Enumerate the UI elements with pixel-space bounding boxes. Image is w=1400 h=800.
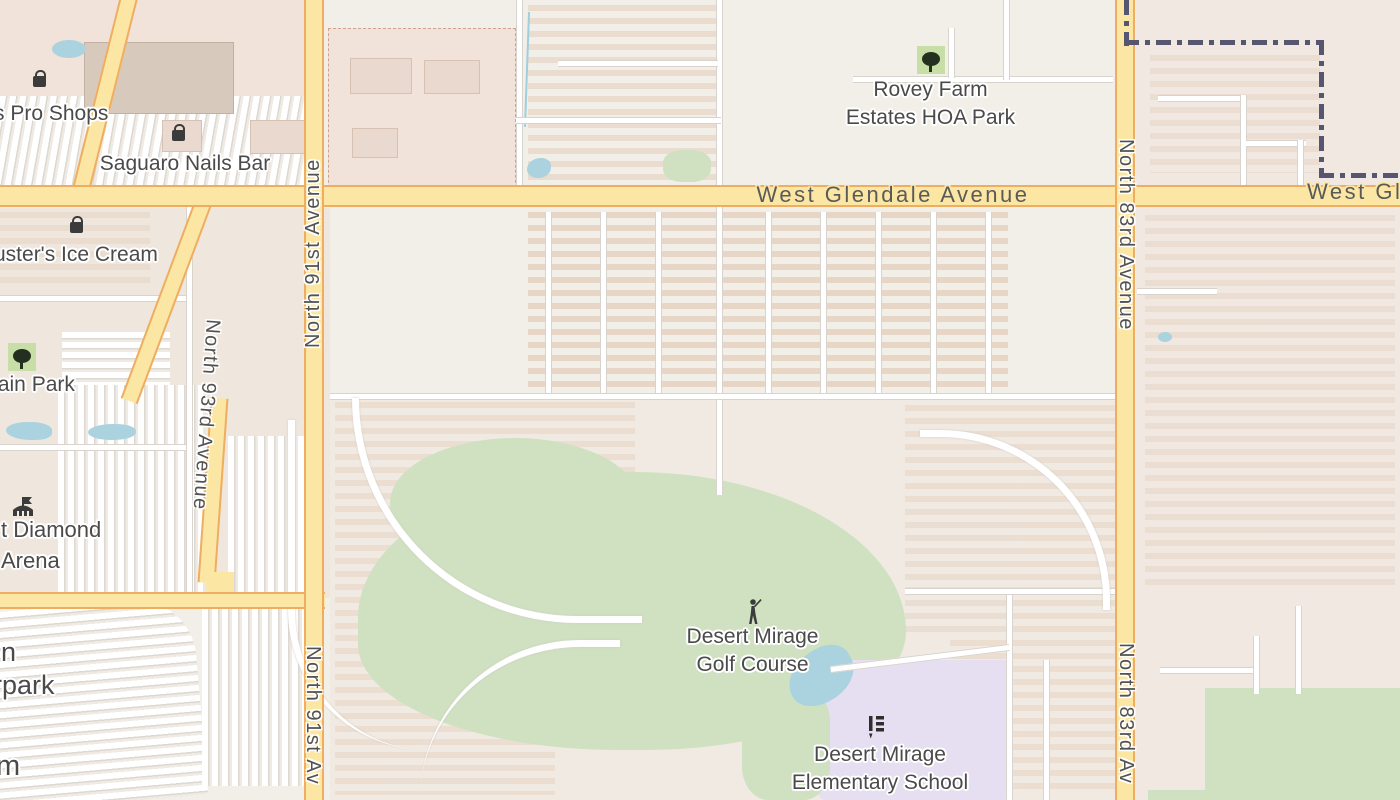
poi-label-golf-course: Desert Mirage Golf Course <box>650 623 855 679</box>
pond <box>52 40 86 58</box>
fountain-pond <box>88 424 136 440</box>
minor-road <box>655 212 662 394</box>
minor-road <box>1006 595 1013 800</box>
map-canvas[interactable]: s Pro Shops Saguaro Nails Bar uster's Ic… <box>0 0 1400 800</box>
minor-road <box>0 444 190 451</box>
minor-road <box>1160 667 1255 674</box>
minor-road <box>545 212 552 394</box>
park-green <box>1205 688 1400 800</box>
minor-road <box>1003 0 1010 80</box>
building <box>424 60 480 94</box>
school-icon <box>866 714 886 740</box>
minor-road <box>1295 606 1302 694</box>
minor-road <box>820 212 827 394</box>
minor-road <box>516 117 721 124</box>
poi-label-bass-pro: s Pro Shops <box>0 100 108 128</box>
minor-road <box>1297 140 1304 187</box>
poi-label-stadium-fragment: m <box>0 750 20 783</box>
minor-road <box>516 0 523 190</box>
shopping-bag-icon <box>70 222 83 233</box>
poi-label-waterpark-fragment: n rpark <box>0 636 55 702</box>
road-label-n91st-lower: North 91st Av <box>301 646 324 785</box>
poi-label-line: Golf Course <box>650 651 855 679</box>
poi-label-school: Desert Mirage Elementary School <box>775 741 985 797</box>
poi-label-line: Desert Mirage <box>650 623 855 651</box>
minor-road <box>1158 95 1246 102</box>
minor-road <box>716 207 723 495</box>
minor-road <box>1043 660 1050 800</box>
pond <box>1158 332 1172 342</box>
tree-icon <box>922 52 940 66</box>
shopping-bag-icon <box>172 130 185 141</box>
building <box>352 128 398 158</box>
shopping-bag-icon <box>33 76 46 87</box>
tree-icon <box>13 349 31 363</box>
building <box>250 120 310 154</box>
minor-road <box>765 212 772 394</box>
minor-road <box>948 28 955 78</box>
building <box>350 58 412 94</box>
poi-label-mountain-park: tain Park <box>0 371 75 399</box>
house-rows <box>1150 55 1320 173</box>
boundary-line <box>1319 40 1324 178</box>
road-west-glendale-avenue <box>0 185 1400 207</box>
minor-road <box>1137 288 1217 295</box>
minor-road <box>558 60 718 67</box>
poi-label-line: Arena <box>1 545 101 576</box>
minor-road <box>1253 636 1260 694</box>
poi-label-line: Desert Mirage <box>775 741 985 769</box>
road-label-n91st-upper: North 91st Avenue <box>302 158 325 348</box>
poi-label-line: rpark <box>0 669 55 702</box>
poi-label-line: t Diamond <box>1 514 101 545</box>
road-label-n83rd-upper: North 83rd Avenue <box>1114 139 1137 331</box>
road-label-n83rd-lower: North 83rd Av <box>1114 643 1137 784</box>
poi-label-rovey-park: Rovey Farm Estates HOA Park <box>828 76 1033 132</box>
poi-label-line: Elementary School <box>775 769 985 797</box>
poi-label-line: n <box>0 636 55 669</box>
golfer-icon <box>741 596 765 626</box>
minor-road <box>875 212 882 394</box>
road-label-glendale: West Glendale Avenue <box>728 182 1058 208</box>
poi-label-line: Rovey Farm <box>828 76 1033 104</box>
poi-label-ice-cream: uster's Ice Cream <box>0 241 158 269</box>
minor-road <box>600 212 607 394</box>
retail-area <box>328 28 516 188</box>
park-green <box>663 150 711 182</box>
fountain-pond <box>6 422 52 440</box>
house-rows <box>1145 215 1395 585</box>
road-west-maryland <box>0 592 325 609</box>
poi-label-line: Estates HOA Park <box>828 104 1033 132</box>
park-green <box>1148 790 1218 800</box>
road-label-glendale-truncated: West Gle <box>1307 179 1400 205</box>
boundary-line <box>1319 173 1400 178</box>
minor-road <box>985 212 992 394</box>
poi-label-saguaro: Saguaro Nails Bar <box>85 150 285 178</box>
minor-road <box>930 212 937 394</box>
minor-road <box>716 0 723 190</box>
poi-label-arena: t Diamond Arena <box>1 514 101 576</box>
boundary-line <box>1124 40 1324 45</box>
